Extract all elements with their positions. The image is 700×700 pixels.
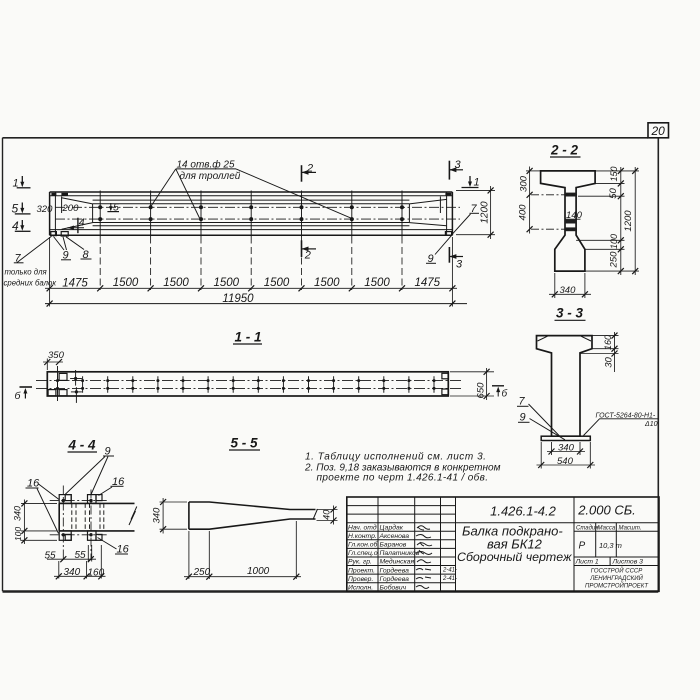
svg-text:320: 320: [37, 204, 54, 215]
svg-text:340: 340: [13, 506, 23, 521]
svg-text:Палатников: Палатников: [380, 550, 420, 557]
svg-text:340: 340: [560, 285, 577, 296]
svg-text:2 - 2: 2 - 2: [550, 143, 579, 158]
svg-text:3 - 3: 3 - 3: [556, 306, 584, 321]
svg-text:1500: 1500: [113, 277, 139, 289]
svg-text:160: 160: [88, 568, 105, 579]
svg-text:Цардак: Цардак: [380, 524, 404, 532]
svg-text:Рук. гр.: Рук. гр.: [348, 559, 372, 566]
svg-text:для троллей: для троллей: [180, 171, 241, 182]
svg-text:только для: только для: [5, 268, 48, 277]
svg-text:Провер.: Провер.: [348, 576, 373, 583]
svg-text:350: 350: [48, 350, 65, 361]
svg-text:Исполн.: Исполн.: [348, 585, 373, 592]
svg-text:30: 30: [604, 357, 615, 368]
svg-text:ЛЕНИНГРАДСКИЙ: ЛЕНИНГРАДСКИЙ: [589, 574, 643, 582]
svg-text:1: 1: [474, 177, 480, 189]
svg-text:9: 9: [520, 412, 526, 424]
svg-text:Листов 3: Листов 3: [612, 559, 644, 566]
svg-text:10,3 т: 10,3 т: [599, 541, 622, 550]
svg-text:4 - 4: 4 - 4: [68, 438, 97, 453]
svg-text:250: 250: [193, 567, 211, 578]
svg-text:340: 340: [152, 507, 163, 524]
svg-text:Гордеева: Гордеева: [380, 566, 410, 574]
svg-text:200: 200: [62, 203, 80, 214]
svg-text:Масшт.: Масшт.: [619, 525, 642, 531]
svg-text:Гл.кон.об: Гл.кон.об: [348, 541, 379, 549]
svg-text:Масса: Масса: [598, 525, 616, 531]
svg-text:11950: 11950: [222, 293, 254, 305]
svg-text:300: 300: [519, 175, 530, 192]
svg-text:50: 50: [608, 188, 619, 199]
svg-text:1 - 1: 1 - 1: [235, 330, 262, 345]
svg-text:400: 400: [518, 204, 529, 221]
svg-text:1200: 1200: [480, 201, 491, 224]
svg-text:б: б: [15, 390, 22, 402]
svg-text:Мединская: Мединская: [380, 558, 415, 566]
svg-text:2.000 СБ.: 2.000 СБ.: [577, 503, 636, 518]
svg-text:540: 540: [557, 456, 574, 467]
svg-text:Стадия: Стадия: [576, 525, 599, 531]
svg-text:1475: 1475: [62, 278, 88, 290]
svg-text:Бобович: Бобович: [380, 584, 407, 592]
svg-text:1500: 1500: [264, 277, 290, 289]
svg-text:ГОСТ-5264-80-Н1-: ГОСТ-5264-80-Н1-: [596, 412, 656, 419]
svg-text:1. Таблицу исполнений см. лис: 1. Таблицу исполнений см. лист 3.: [305, 451, 487, 463]
svg-text:5: 5: [113, 202, 119, 214]
svg-text:1500: 1500: [314, 277, 340, 289]
svg-text:ГОССТРОЙ СССР: ГОССТРОЙ СССР: [591, 567, 643, 575]
svg-text:20: 20: [651, 124, 666, 138]
svg-text:40: 40: [322, 510, 332, 520]
svg-text:Δ10: Δ10: [644, 421, 658, 428]
svg-text:160: 160: [603, 335, 613, 350]
svg-text:3: 3: [455, 159, 462, 171]
svg-text:4: 4: [79, 216, 85, 228]
svg-text:340: 340: [558, 442, 575, 453]
svg-text:Проект.: Проект.: [348, 567, 375, 574]
svg-text:7: 7: [519, 396, 526, 408]
svg-text:650: 650: [476, 382, 487, 399]
svg-text:340: 340: [64, 567, 81, 578]
svg-text:2: 2: [304, 250, 311, 262]
svg-text:5 - 5: 5 - 5: [231, 436, 259, 451]
svg-text:1000: 1000: [247, 566, 270, 577]
svg-text:55: 55: [45, 550, 57, 561]
svg-text:2-41-: 2-41-: [442, 576, 457, 582]
svg-text:5: 5: [12, 202, 19, 216]
svg-text:Нач. отд: Нач. отд: [348, 524, 377, 532]
svg-text:100: 100: [609, 234, 619, 249]
svg-text:Лист 1: Лист 1: [575, 559, 599, 566]
svg-text:1200: 1200: [623, 210, 634, 232]
svg-text:100: 100: [13, 527, 23, 541]
svg-text:ПРОМСТРОЙПРОЕКТ: ПРОМСТРОЙПРОЕКТ: [585, 581, 649, 589]
svg-text:Р: Р: [579, 541, 586, 552]
svg-text:1: 1: [13, 178, 19, 190]
svg-text:2: 2: [306, 163, 313, 175]
svg-text:1500: 1500: [214, 277, 240, 289]
svg-text:1500: 1500: [163, 277, 189, 289]
svg-text:Н.контр.: Н.контр.: [348, 533, 377, 540]
svg-text:3: 3: [456, 259, 463, 271]
svg-text:Гордеева: Гордеева: [380, 575, 410, 583]
svg-text:Сборочный чертеж: Сборочный чертеж: [457, 550, 572, 564]
svg-text:1500: 1500: [364, 277, 390, 289]
svg-text:150: 150: [609, 166, 619, 181]
svg-text:55: 55: [75, 550, 87, 561]
svg-text:2-41-: 2-41-: [442, 568, 457, 574]
svg-text:1.426.1-4.2: 1.426.1-4.2: [490, 504, 557, 519]
svg-text:проекте по черт 1.426.1-41 / о: проекте по черт 1.426.1-41 / обв.: [317, 472, 489, 484]
svg-text:4: 4: [12, 219, 19, 233]
svg-text:б: б: [502, 388, 508, 400]
svg-text:Аксенова: Аксенова: [379, 533, 410, 540]
svg-text:Баранов: Баранов: [380, 542, 407, 549]
svg-text:средних балок: средних балок: [4, 279, 57, 288]
svg-text:1475: 1475: [415, 277, 441, 289]
svg-text:Гл.спец.о: Гл.спец.о: [348, 550, 378, 557]
svg-text:250: 250: [608, 251, 619, 269]
